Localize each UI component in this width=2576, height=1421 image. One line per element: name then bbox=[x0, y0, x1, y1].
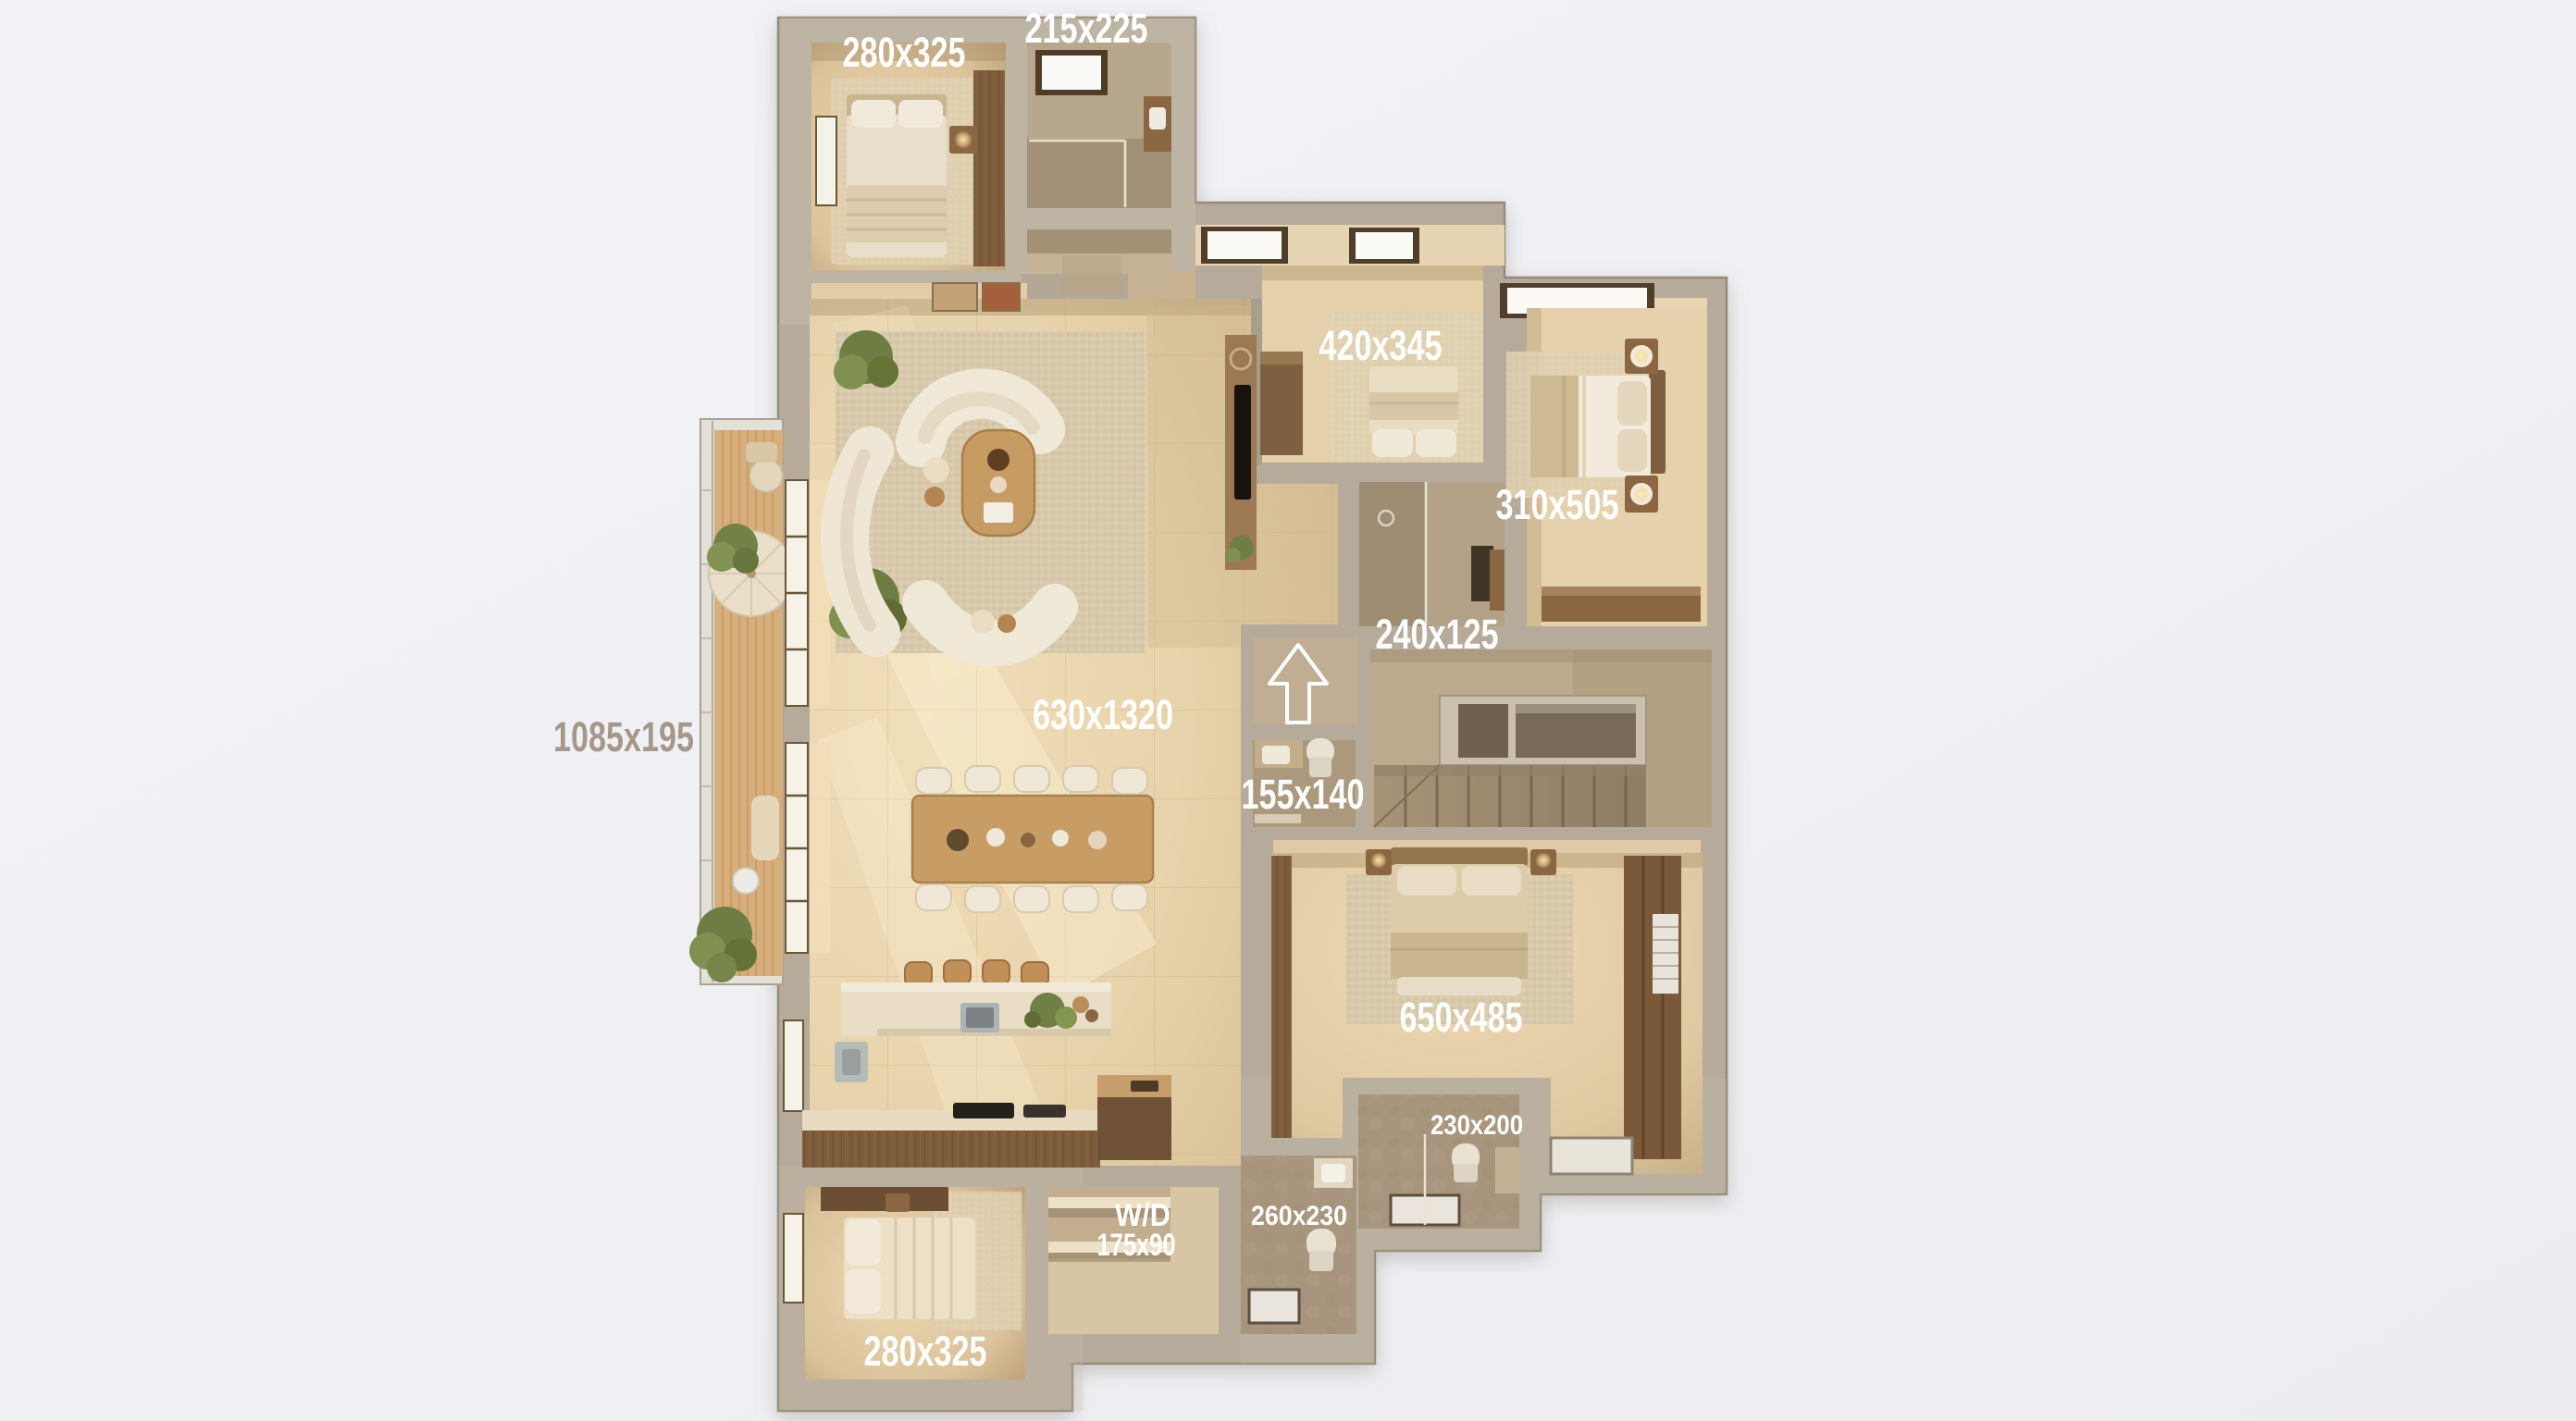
svg-text:420x345: 420x345 bbox=[1319, 322, 1443, 369]
svg-text:230x200: 230x200 bbox=[1430, 1110, 1523, 1141]
svg-text:175x90: 175x90 bbox=[1097, 1228, 1176, 1263]
svg-text:310x505: 310x505 bbox=[1496, 481, 1619, 528]
svg-text:650x485: 650x485 bbox=[1400, 994, 1523, 1041]
svg-text:280x325: 280x325 bbox=[843, 29, 966, 76]
svg-text:215x225: 215x225 bbox=[1025, 5, 1148, 52]
svg-text:260x230: 260x230 bbox=[1251, 1201, 1347, 1231]
svg-text:240x125: 240x125 bbox=[1376, 611, 1499, 658]
svg-text:280x325: 280x325 bbox=[864, 1328, 987, 1375]
svg-text:1085x195: 1085x195 bbox=[553, 713, 694, 760]
svg-text:155x140: 155x140 bbox=[1242, 771, 1365, 818]
svg-text:630x1320: 630x1320 bbox=[1033, 691, 1173, 738]
